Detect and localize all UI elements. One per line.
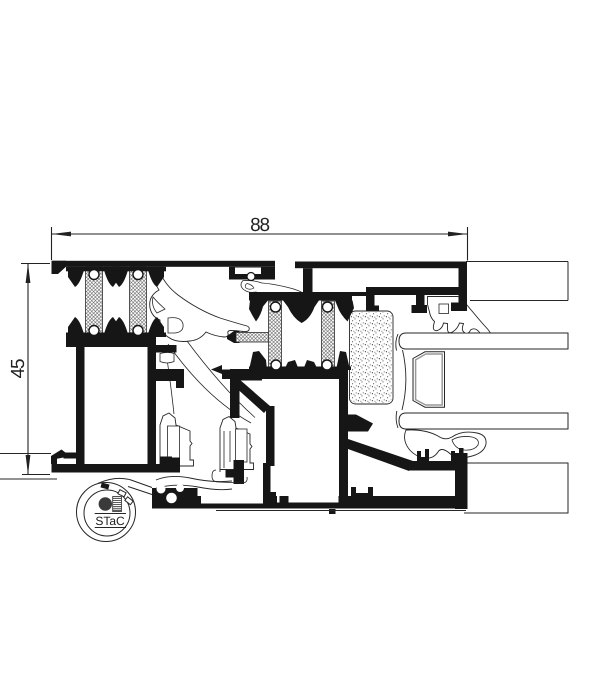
- svg-text:88: 88: [250, 215, 269, 236]
- svg-text:45: 45: [8, 359, 29, 378]
- svg-text:STaC: STaC: [95, 514, 125, 528]
